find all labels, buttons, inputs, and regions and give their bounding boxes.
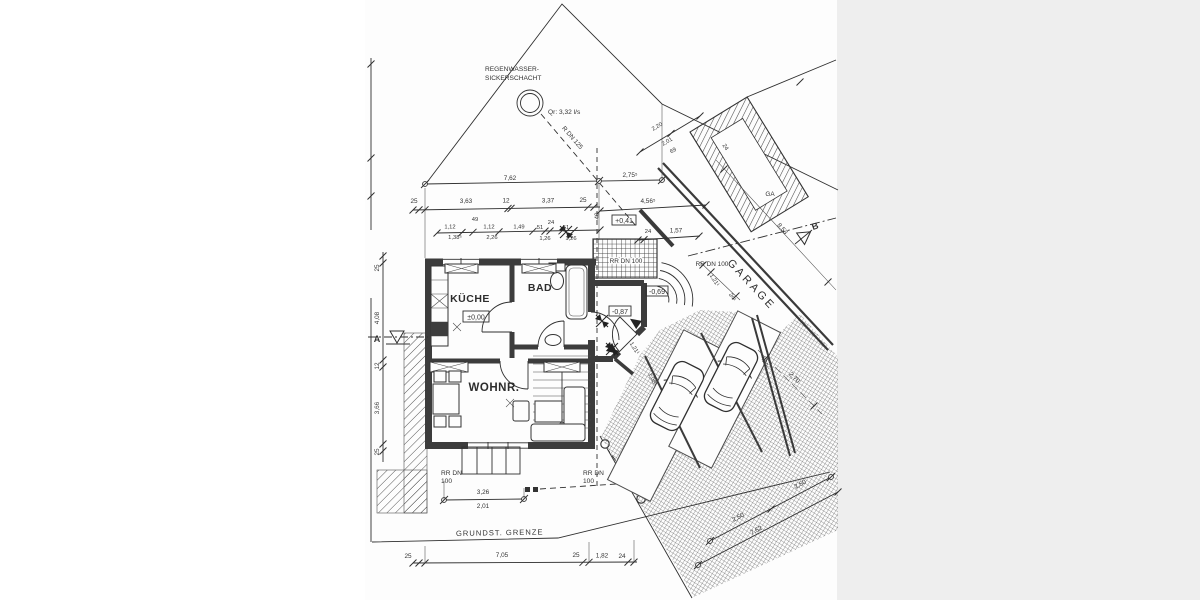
- dim: 24: [645, 229, 652, 235]
- sickerschacht-label: SICKERSCHACHT: [485, 75, 541, 82]
- dim: 1,12: [483, 225, 494, 231]
- dim: 3,37: [542, 198, 555, 205]
- dim: 49: [472, 217, 478, 223]
- dim: 12: [502, 198, 510, 205]
- level-outside-upper: -0,69: [649, 289, 665, 296]
- downpipe-porch: RR DN 100: [610, 258, 643, 265]
- dim: 25: [374, 448, 381, 456]
- downpipe-sw-2: 100: [441, 478, 452, 485]
- right-margin: [837, 0, 1200, 600]
- regenwasser-label: REGENWASSER-: [485, 66, 539, 73]
- dim: 1,82: [596, 553, 609, 560]
- dim: 1,26: [565, 236, 576, 242]
- dim: 7,62: [504, 175, 517, 182]
- bath-label: BAD: [528, 282, 552, 294]
- level-ground: ±0,00: [467, 315, 485, 322]
- downpipe-se-1: RR DN: [583, 470, 604, 477]
- dim: 1,12: [444, 225, 455, 231]
- dim: 4,08: [374, 311, 381, 324]
- flow-rate-label: Qr: 3,32 l/s: [548, 109, 581, 116]
- dim: 2,26: [486, 235, 497, 241]
- dim: 7,05: [496, 552, 509, 559]
- level-outside-lower: -0,87: [612, 309, 628, 316]
- dim: 12: [374, 362, 381, 370]
- dim: 51: [537, 225, 543, 231]
- kitchen-fixtures: [431, 266, 448, 346]
- dim: 24: [618, 553, 626, 560]
- dim: 24: [548, 220, 555, 226]
- section-a-label: A: [374, 334, 381, 344]
- ga-label: GA: [765, 191, 775, 198]
- dim: 1,38⁵: [448, 234, 462, 241]
- level-entry: +0,41: [615, 218, 633, 225]
- downpipe-se-2: 100: [583, 478, 594, 485]
- dim: 2,75⁵: [622, 172, 637, 179]
- downpipe-sw-1: RR DN: [441, 470, 462, 477]
- boundary-label: GRUNDST. GRENZE: [456, 527, 544, 538]
- dim: 1,26: [539, 236, 550, 242]
- dim: 3,63: [460, 198, 473, 205]
- dim: 25: [374, 264, 381, 272]
- dim: 25: [572, 552, 580, 559]
- kitchen-label: KÜCHE: [450, 292, 490, 305]
- dim: 1,57: [670, 228, 683, 235]
- floor-plan-page: REGENWASSER- SICKERSCHACHT Qr: 3,32 l/s …: [0, 0, 1200, 600]
- dim: 2,01: [477, 503, 490, 510]
- dim: 3,66: [374, 401, 381, 414]
- dim: 1,49: [513, 225, 524, 231]
- dim: 25: [579, 197, 587, 204]
- dim: 4,56⁵: [640, 198, 655, 205]
- dim: 51: [563, 225, 569, 231]
- site-plan-drawing: REGENWASSER- SICKERSCHACHT Qr: 3,32 l/s …: [0, 0, 1200, 600]
- dim: 25: [404, 553, 412, 560]
- living-label: WOHNR.: [469, 382, 520, 394]
- dim: 25: [410, 198, 418, 205]
- dim: 3,26: [477, 489, 490, 496]
